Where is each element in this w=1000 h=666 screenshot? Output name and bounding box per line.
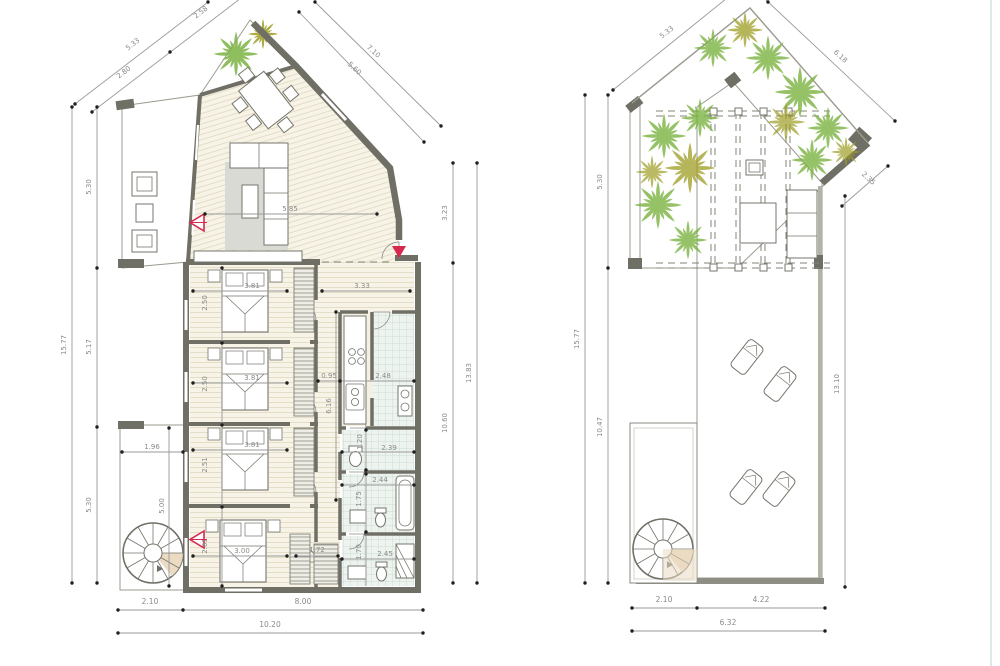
dim-label: 2.50 <box>201 376 209 392</box>
deck-chair <box>746 160 763 175</box>
wardrobe <box>294 268 314 332</box>
sun-lounger <box>761 470 796 508</box>
dim-label: 5.30 <box>596 174 604 190</box>
toilet <box>377 567 387 581</box>
dim-label: 2.45 <box>377 550 393 558</box>
toilet <box>350 452 362 467</box>
terrace-table <box>136 204 153 222</box>
dim-label: 3.23 <box>441 205 449 221</box>
dim-label: 3.33 <box>354 282 370 290</box>
deck-table <box>740 203 776 243</box>
dim-label: 2.39 <box>381 444 397 452</box>
spiral-stair <box>123 523 183 583</box>
toilet <box>376 513 386 527</box>
washbasin <box>350 510 366 523</box>
west-parapet <box>630 103 640 268</box>
wall-cap <box>628 258 642 269</box>
tree-icon <box>665 143 716 194</box>
dim-label: 1.70 <box>355 544 363 560</box>
dim-label: 1.72 <box>309 546 325 554</box>
dim-label: 3.00 <box>234 547 250 555</box>
tree-icon <box>681 99 720 138</box>
dim-label: 5.33 <box>658 24 675 40</box>
wardrobe <box>294 428 314 496</box>
dim-label: 3.81 <box>244 374 260 382</box>
wall-cap <box>118 259 144 268</box>
dim-label: 2.80 <box>115 64 132 80</box>
dim-label: 13.10 <box>833 374 841 394</box>
tree-icon <box>767 103 806 142</box>
wall-cap <box>116 99 135 110</box>
dim-label: 15.77 <box>573 329 581 349</box>
kitchen-counter <box>344 316 366 424</box>
stair-landing <box>663 549 697 581</box>
sun-lounger <box>762 365 797 403</box>
tree-icon <box>727 12 763 48</box>
dim-label: 1.75 <box>355 491 363 507</box>
dim-label: 2.58 <box>192 4 209 20</box>
dim-label: 15.77 <box>60 335 68 355</box>
tree-icon <box>636 156 669 189</box>
dim-label: 10.60 <box>441 413 449 433</box>
terrace-armchair <box>132 230 157 252</box>
dim-label: 13.83 <box>465 363 473 383</box>
dim-label: 10.47 <box>596 417 604 437</box>
tree-icon <box>807 107 849 149</box>
tree-icon <box>642 114 687 159</box>
dim-label: 0.95 <box>321 372 337 380</box>
double-sink <box>398 386 412 416</box>
dim-label: 2.10 <box>656 595 673 604</box>
dim-label: 4.22 <box>753 595 770 604</box>
tree-icon <box>669 221 708 260</box>
wardrobe <box>294 348 314 416</box>
dim-label: 6.18 <box>832 48 849 64</box>
washbasin <box>348 566 366 579</box>
pergola-posts <box>710 108 792 271</box>
coffee-table <box>242 185 258 218</box>
dim-label: 5.17 <box>85 339 93 355</box>
tree-icon <box>775 67 826 118</box>
dim-label: 5.00 <box>158 498 166 514</box>
left-plan-apartment: 5.33 2.80 2.58 7.10 5.60 15.77 5.30 5.17… <box>60 0 479 635</box>
dim-label: 5.85 <box>282 205 298 213</box>
dim-label: 1.96 <box>144 443 160 451</box>
dim-label: 10.20 <box>259 620 281 629</box>
sideboard <box>194 251 302 262</box>
dim-label: 2.10 <box>142 597 159 606</box>
dim-label: 3.81 <box>244 441 260 449</box>
dim-label: 2.61 <box>201 538 209 554</box>
tree-icon <box>746 36 791 81</box>
tree-icon <box>694 29 733 68</box>
floor-plan-canvas: 5.33 2.80 2.58 7.10 5.60 15.77 5.30 5.17… <box>0 0 1000 666</box>
deck-sofa <box>787 190 817 258</box>
dim-label: 2.44 <box>372 476 388 484</box>
tree-icon <box>831 137 861 167</box>
sun-lounger <box>728 468 763 506</box>
sun-lounger <box>729 338 764 376</box>
terrace-armchair <box>132 172 157 196</box>
dim-label: 1.20 <box>356 434 364 450</box>
dim-label: 2.51 <box>201 457 209 473</box>
dim-label: 5.30 <box>85 497 93 513</box>
dim-label: 5.60 <box>346 60 363 76</box>
dim-label: 6.32 <box>720 618 737 627</box>
tree-icon <box>634 181 682 229</box>
dim-label: 2.35 <box>860 170 877 186</box>
wardrobe-master <box>290 534 310 584</box>
dim-label: 7.10 <box>365 43 382 59</box>
plan-sheet: 5.33 2.80 2.58 7.10 5.60 15.77 5.30 5.17… <box>0 0 1000 666</box>
right-plan-roof: 5.33 6.18 2.35 15.77 5.30 10.47 13.10 2.… <box>573 0 897 633</box>
wall-cap <box>118 421 144 429</box>
dim-label: 6.16 <box>325 398 333 414</box>
dim-label: 2.50 <box>201 295 209 311</box>
tree-icon <box>214 32 259 77</box>
dim-label: 5.33 <box>124 36 141 52</box>
right-dimensions: 5.33 6.18 2.35 15.77 5.30 10.47 13.10 2.… <box>573 0 897 633</box>
dim-label: 8.00 <box>295 597 312 606</box>
dim-label: 3.81 <box>244 282 260 290</box>
dim-label: 2.48 <box>375 372 391 380</box>
dim-label: 5.30 <box>85 179 93 195</box>
tree-icon <box>791 139 833 181</box>
